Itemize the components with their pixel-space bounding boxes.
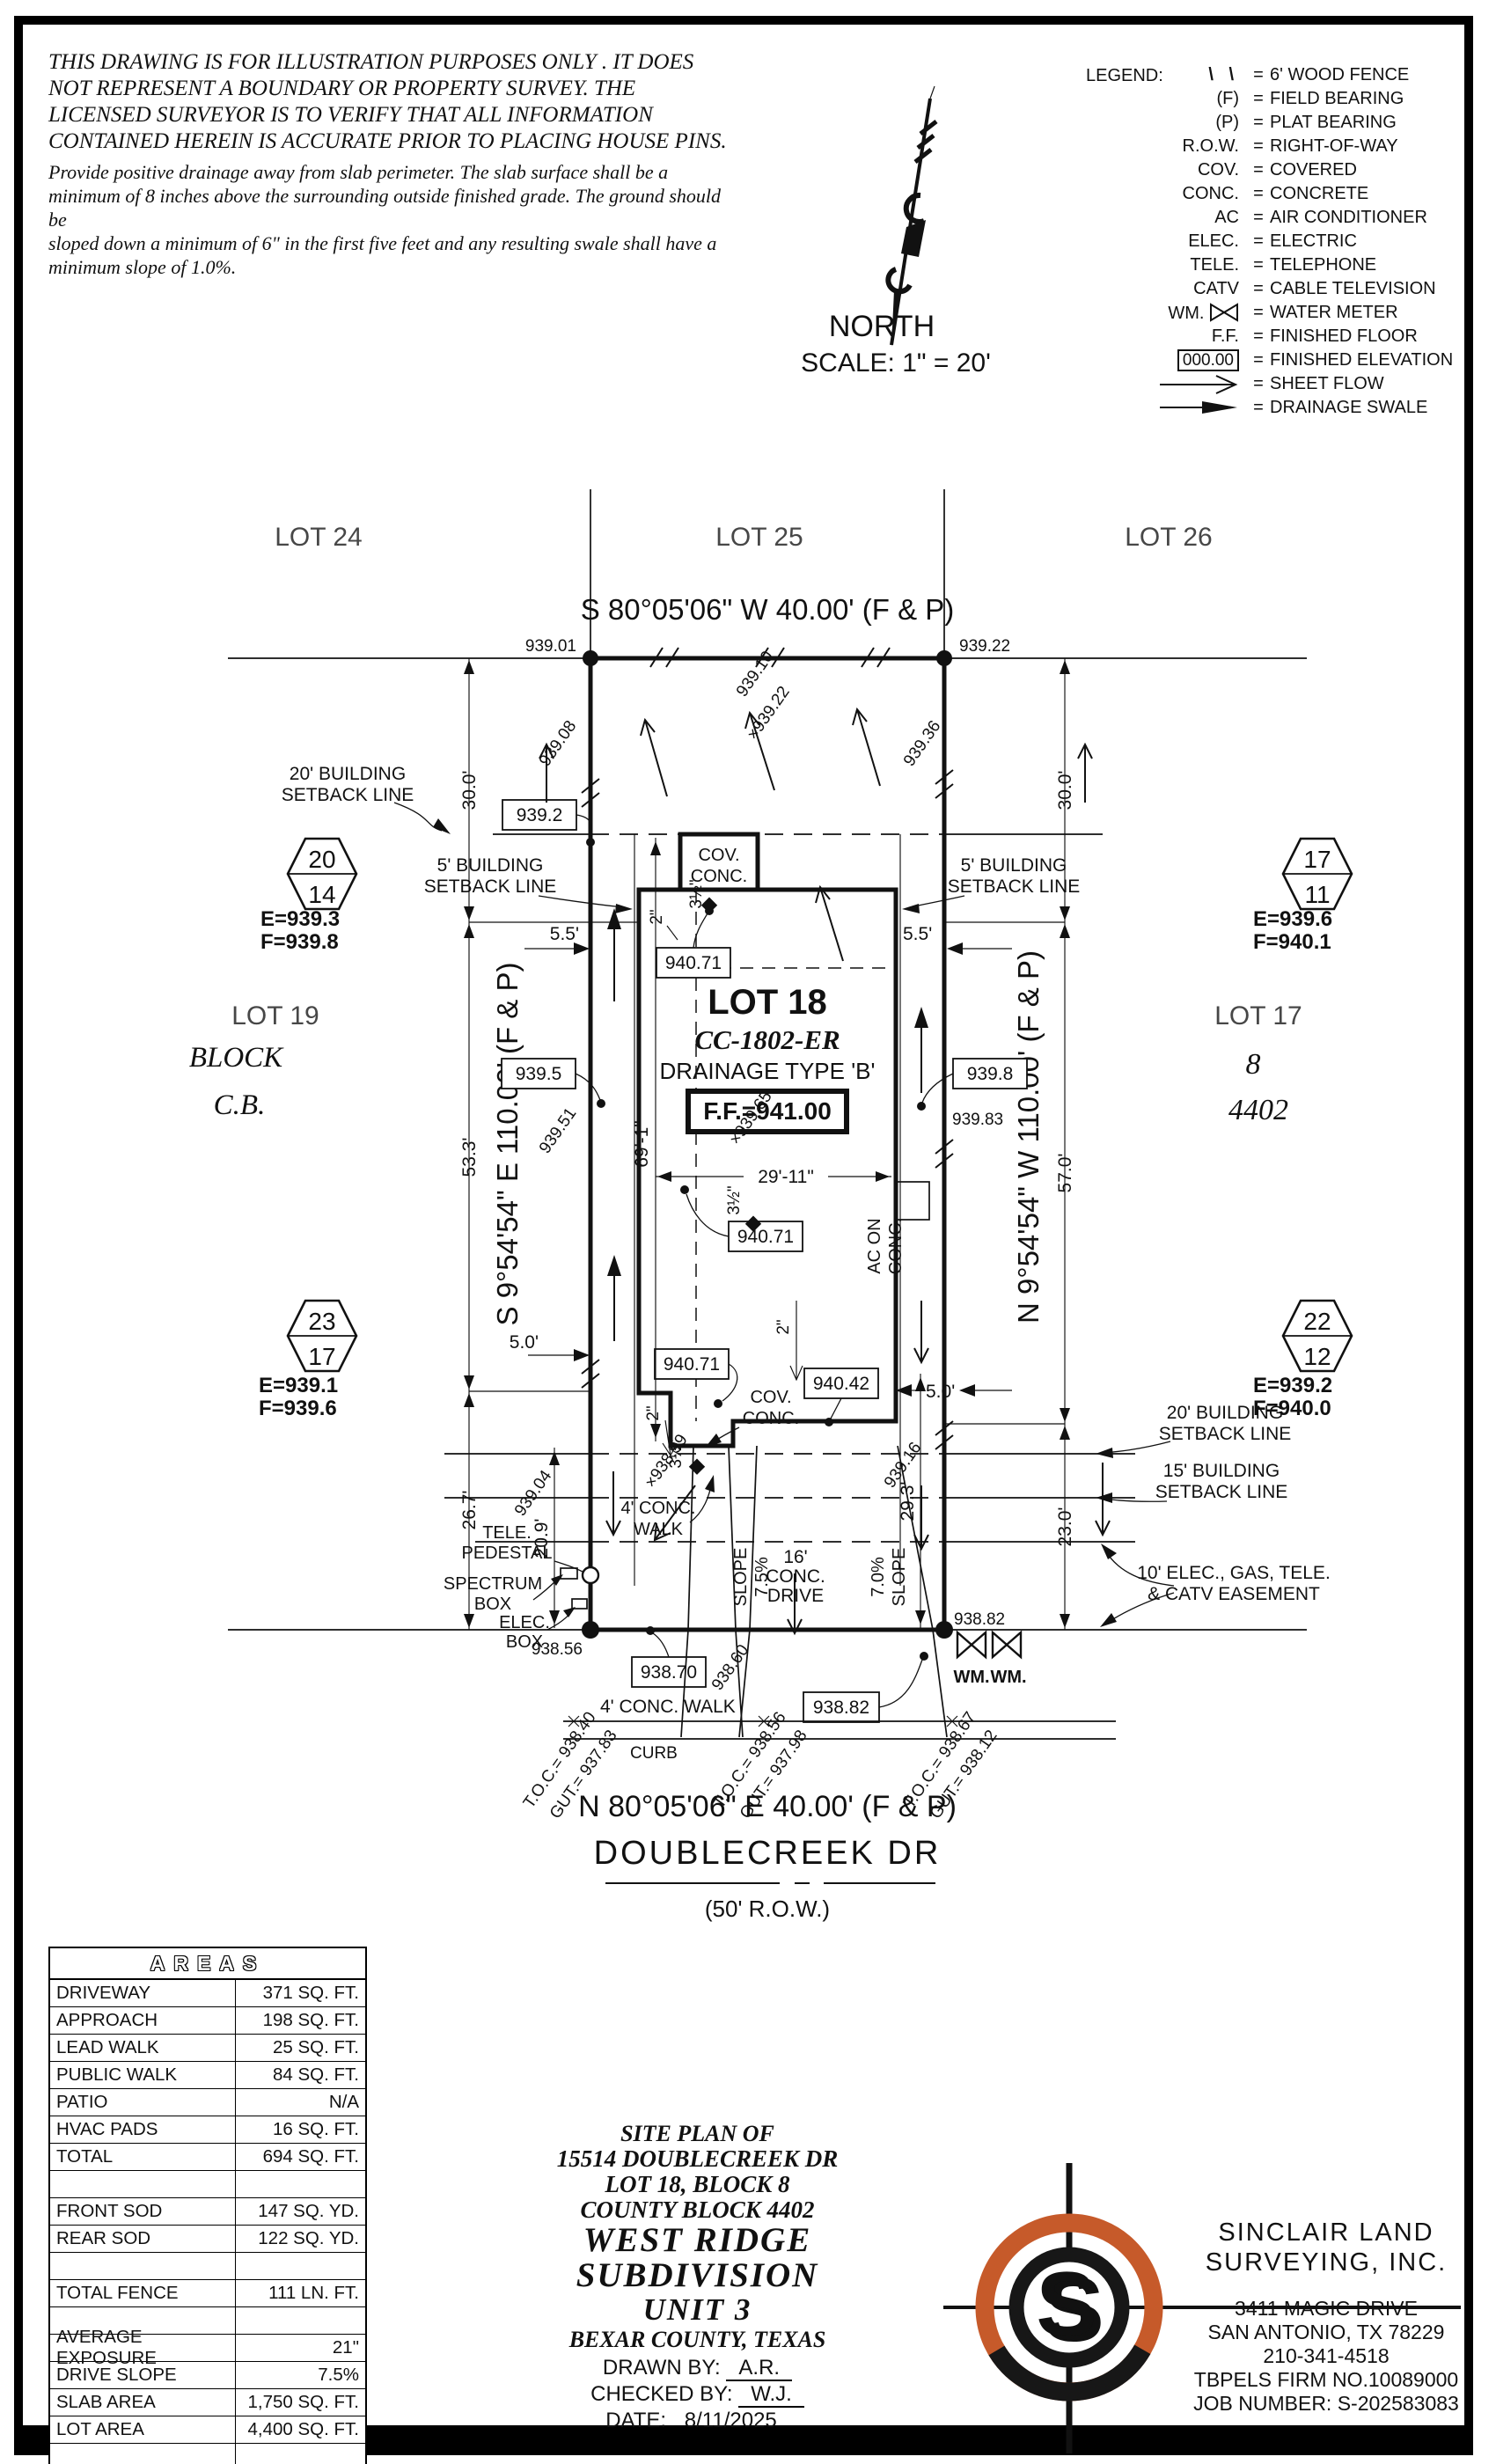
svg-text:2": 2" — [774, 1319, 793, 1334]
subdivision-name: WEST RIDGE SUBDIVISION — [458, 2223, 937, 2293]
county-block: COUNTY BLOCK 4402 — [458, 2197, 937, 2223]
spot-elevation: 939.08 — [536, 717, 581, 770]
job-number: JOB NUMBER: S-202583083 — [1186, 2392, 1466, 2416]
benchmark-marker-17-11: 17 11 E=939.6 F=940.1 — [1253, 839, 1352, 954]
svg-text:E=939.2: E=939.2 — [1253, 1374, 1332, 1397]
svg-text:PEDESTAL: PEDESTAL — [462, 1544, 553, 1563]
svg-text:SETBACK LINE: SETBACK LINE — [282, 785, 414, 805]
firm-number: TBPELS FIRM NO.10089000 — [1186, 2368, 1466, 2392]
svg-text:22: 22 — [1303, 1308, 1331, 1335]
boxed-elevation-940-42: 940.42 — [804, 1368, 878, 1426]
date: DATE: 8/11/2025 — [458, 2409, 937, 2433]
adjacent-lot-26-label: LOT 26 — [1125, 523, 1213, 552]
east-bearing-label: N 9°54'54" W 110.00' (F & P) — [1012, 950, 1045, 1324]
front-walk: 4' CONC. WALK — [621, 1446, 743, 1737]
water-meter-symbols: WM. WM. — [953, 1632, 1026, 1687]
dim-23-0: 23.0' — [1055, 1507, 1075, 1547]
svg-text:BOX: BOX — [474, 1595, 511, 1614]
svg-text:12: 12 — [1303, 1343, 1331, 1370]
svg-text:939.8: 939.8 — [967, 1064, 1014, 1084]
svg-text:TELE.: TELE. — [482, 1523, 532, 1543]
benchmark-marker-23-17: 23 17 E=939.1 F=939.6 — [259, 1301, 356, 1420]
dim-5-5-left: 5.5' — [524, 924, 590, 955]
dim-2in: 2" — [648, 909, 666, 924]
svg-text:20: 20 — [308, 846, 335, 873]
checked-by: CHECKED BY: W.J. — [458, 2382, 937, 2407]
svg-text:5' BUILDING: 5' BUILDING — [437, 855, 544, 876]
svg-text:4' CONC.: 4' CONC. — [621, 1499, 696, 1518]
svg-text:E=939.1: E=939.1 — [259, 1374, 338, 1397]
setback-20-label-left: 20' BUILDING SETBACK LINE — [282, 764, 451, 834]
svg-text:69'-1": 69'-1" — [632, 1120, 652, 1168]
svg-text:4' CONC. WALK: 4' CONC. WALK — [600, 1697, 736, 1717]
spot-elevation: 939.83 — [952, 1111, 1003, 1129]
svg-text:15' BUILDING: 15' BUILDING — [1163, 1461, 1280, 1481]
drawn-by: DRAWN BY: A.R. — [458, 2356, 937, 2380]
areas-title: AREAS — [50, 1948, 365, 1980]
svg-text:F=940.1: F=940.1 — [1253, 930, 1331, 954]
svg-text:F=939.8: F=939.8 — [260, 930, 339, 954]
benchmark-marker-22-12: 22 12 E=939.2 F=940.0 — [1253, 1301, 1352, 1420]
company-name: SINCLAIR LAND — [1186, 2218, 1466, 2248]
svg-text:WM.: WM. — [990, 1668, 1026, 1687]
street-row: (50' R.O.W.) — [705, 1896, 830, 1922]
title-block: SITE PLAN OF 15514 DOUBLECREEK DR LOT 18… — [458, 2121, 937, 2433]
adjacent-lot-19-label: LOT 19 — [231, 1001, 319, 1030]
spot-elevation: 938.82 — [954, 1610, 1005, 1629]
lot-18-drainage-type: DRAINAGE TYPE 'B' — [660, 1058, 876, 1084]
svg-text:E=939.6: E=939.6 — [1253, 907, 1332, 931]
svg-text:5.5': 5.5' — [550, 924, 579, 944]
scale-label: SCALE: 1" = 20' — [801, 348, 991, 378]
svg-text:940.71: 940.71 — [737, 1227, 794, 1247]
svg-text:SPECTRUM: SPECTRUM — [444, 1574, 542, 1594]
ac-pad — [896, 1182, 929, 1220]
svg-text:939.5: 939.5 — [516, 1064, 562, 1084]
svg-text:938.70: 938.70 — [641, 1662, 697, 1683]
company-info: SINCLAIR LAND SURVEYING, INC. 3411 MAGIC… — [1186, 2218, 1466, 2416]
lot-18-title: LOT 18 — [708, 983, 827, 1022]
svg-text:11: 11 — [1304, 881, 1330, 908]
spot-elevation: 939.51 — [536, 1104, 581, 1157]
dim-3-5in: 3½" — [725, 1185, 744, 1214]
areas-table: AREAS DRIVEWAY371 SQ. FT. APPROACH198 SQ… — [48, 1947, 367, 2464]
svg-text:5' BUILDING: 5' BUILDING — [961, 855, 1067, 876]
svg-text:CONC.: CONC. — [886, 1218, 906, 1274]
dim-53-3: 53.3' — [459, 1138, 480, 1177]
svg-text:940.71: 940.71 — [664, 1354, 720, 1375]
svg-text:COV.: COV. — [750, 1388, 791, 1407]
dim-57-0: 57.0' — [1055, 1154, 1075, 1193]
spot-elevation: 939.04 — [511, 1467, 556, 1520]
svg-text:E=939.3: E=939.3 — [260, 907, 340, 931]
setback-5-label-right: 5' BUILDING SETBACK LINE — [902, 855, 1080, 913]
street-name: DOUBLECREEK DR — [594, 1835, 942, 1872]
dim-5-0-right: 5.0' — [896, 1382, 1012, 1402]
svg-text:SETBACK LINE: SETBACK LINE — [424, 876, 557, 897]
rear-lot-line — [228, 489, 1307, 667]
dim-30-left: 30.0' — [459, 771, 480, 810]
svg-text:10' ELEC., GAS, TELE.: 10' ELEC., GAS, TELE. — [1137, 1563, 1331, 1583]
company-phone: 210-341-4518 — [1186, 2344, 1466, 2368]
svg-text:SLOPE: SLOPE — [731, 1548, 751, 1607]
svg-text:5.5': 5.5' — [903, 924, 932, 944]
svg-text:29'-11": 29'-11" — [758, 1167, 814, 1187]
svg-text:938.82: 938.82 — [813, 1698, 869, 1718]
logo-letter: S — [1036, 2254, 1096, 2356]
company-address: 3411 MAGIC DRIVE — [1186, 2297, 1466, 2321]
dim-29-11: 29'-11" — [656, 1167, 891, 1187]
block-8: 8 — [1246, 1048, 1261, 1081]
site-address: 15514 DOUBLECREEK DR — [458, 2146, 937, 2172]
boxed-elevation-939-2: 939.2 — [502, 800, 595, 847]
svg-text:940.71: 940.71 — [665, 953, 722, 973]
site-plan-page: THIS DRAWING IS FOR ILLUSTRATION PURPOSE… — [0, 0, 1496, 2464]
dimension-chain-right — [944, 658, 1070, 1630]
north-label: NORTH — [829, 310, 935, 343]
svg-text:CONC.: CONC. — [743, 1409, 799, 1428]
north-arrow-icon — [888, 86, 936, 347]
dim-5-5-right: 5.5' — [903, 924, 1012, 955]
lot-block: LOT 18, BLOCK 8 — [458, 2172, 937, 2197]
block-cb: C.B. — [214, 1089, 266, 1121]
svg-text:940.42: 940.42 — [813, 1374, 869, 1394]
setback-5-label-left: 5' BUILDING SETBACK LINE — [424, 855, 633, 913]
setback-15-label-right: 15' BUILDING SETBACK LINE — [1096, 1461, 1287, 1503]
front-porch-label: COV. CONC. — [706, 1388, 799, 1447]
svg-text:23: 23 — [308, 1308, 335, 1335]
svg-text:SETBACK LINE: SETBACK LINE — [1159, 1424, 1292, 1444]
boxed-elevation-940-71-rear: 940.71 — [656, 906, 730, 978]
svg-text:F=939.6: F=939.6 — [259, 1397, 337, 1420]
svg-text:BOX: BOX — [506, 1632, 543, 1652]
dim-3-5in: 3½" — [667, 1439, 686, 1468]
svg-text:7.5%: 7.5% — [752, 1557, 772, 1597]
easement-label: 10' ELEC., GAS, TELE. & CATV EASEMENT — [1100, 1544, 1331, 1627]
svg-text:SETBACK LINE: SETBACK LINE — [948, 876, 1081, 897]
dim-2in-long: 2" — [774, 1301, 803, 1380]
corner-elevation: 939.01 — [525, 637, 576, 656]
svg-text:5.0': 5.0' — [926, 1382, 955, 1402]
rear-bearing-label: S 80°05'06" W 40.00' (F & P) — [581, 593, 955, 626]
svg-text:F=940.0: F=940.0 — [1253, 1397, 1331, 1420]
svg-text:& CATV EASEMENT: & CATV EASEMENT — [1148, 1584, 1320, 1604]
svg-text:17: 17 — [308, 1343, 335, 1370]
rear-porch-label: COV. — [698, 846, 739, 865]
svg-text:ELEC.: ELEC. — [499, 1613, 550, 1632]
svg-text:16': 16' — [783, 1547, 807, 1567]
svg-text:20' BUILDING: 20' BUILDING — [290, 764, 406, 784]
svg-text:2": 2" — [644, 1405, 663, 1420]
side-lot-lines — [228, 658, 1307, 1639]
svg-text:CURB: CURB — [630, 1744, 678, 1763]
spectrum-box: SPECTRUM BOX — [444, 1568, 577, 1614]
front-bearing-label: N 80°05'06" E 40.00' (F & P) — [578, 1790, 957, 1823]
boxed-elevation-938-70: 938.70 — [632, 1626, 706, 1687]
ac-label: AC ON — [865, 1218, 884, 1273]
adjacent-lot-24-label: LOT 24 — [275, 523, 363, 552]
spot-elevation: 939.36 — [900, 717, 945, 770]
block-word: BLOCK — [189, 1042, 284, 1074]
svg-text:14: 14 — [308, 881, 335, 908]
adjacent-lot-25-label: LOT 25 — [715, 523, 803, 552]
dim-26-7: 26.7' — [459, 1491, 480, 1530]
adjacent-lot-17-label: LOT 17 — [1214, 1001, 1302, 1030]
title-line: SITE PLAN OF — [458, 2121, 937, 2146]
dim-5-0-left: 5.0' — [510, 1332, 590, 1361]
svg-text:5.0': 5.0' — [510, 1332, 539, 1353]
lot-18-plan-code: CC-1802-ER — [694, 1024, 840, 1055]
svg-text:7.0%: 7.0% — [869, 1557, 888, 1597]
boxed-elevation-939-8: 939.8 — [917, 1059, 1027, 1111]
svg-text:SLOPE: SLOPE — [890, 1548, 909, 1607]
county-state: BEXAR COUNTY, TEXAS — [458, 2326, 937, 2354]
svg-text:WM.: WM. — [953, 1668, 989, 1687]
unit: UNIT 3 — [458, 2293, 937, 2326]
svg-text:SETBACK LINE: SETBACK LINE — [1155, 1482, 1288, 1502]
county-block-4402: 4402 — [1228, 1094, 1288, 1126]
corner-elevation: 939.22 — [959, 637, 1010, 656]
benchmark-marker-20-14: 20 14 E=939.3 F=939.8 — [260, 839, 356, 954]
svg-text:939.2: 939.2 — [517, 805, 563, 825]
dim-30-right: 30.0' — [1055, 771, 1075, 810]
west-bearing-label: S 9°54'54" E 110.00' (F & P) — [491, 963, 524, 1326]
boxed-elevation-938-82: 938.82 — [803, 1652, 928, 1722]
svg-text:17: 17 — [1303, 846, 1331, 873]
